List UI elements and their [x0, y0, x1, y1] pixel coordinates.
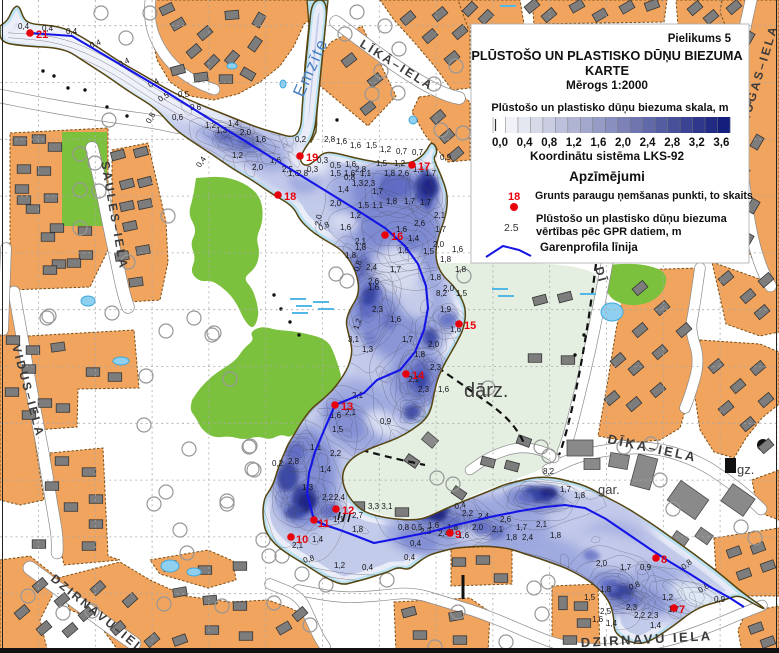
svg-text:1,5: 1,5 — [330, 169, 342, 178]
svg-text:2,4: 2,4 — [366, 263, 378, 272]
svg-text:1,6: 1,6 — [340, 223, 352, 232]
svg-text:13: 13 — [341, 401, 353, 413]
svg-text:2,3: 2,3 — [430, 363, 442, 372]
svg-text:Pielikums 5: Pielikums 5 — [668, 33, 732, 45]
svg-text:Koordinātu sistēma LKS-92: Koordinātu sistēma LKS-92 — [530, 149, 684, 163]
svg-text:19: 19 — [306, 152, 318, 164]
svg-text:2,6: 2,6 — [368, 277, 380, 286]
svg-text:0,6: 0,6 — [172, 113, 184, 122]
svg-text:1,2: 1,2 — [662, 593, 674, 602]
svg-text:17: 17 — [418, 161, 430, 173]
svg-text:2,8: 2,8 — [664, 137, 681, 149]
svg-text:11: 11 — [318, 518, 330, 530]
svg-text:1,8: 1,8 — [440, 255, 452, 264]
svg-text:0,7: 0,7 — [412, 148, 424, 157]
svg-text:0,9: 0,9 — [714, 595, 726, 604]
svg-text:1,8: 1,8 — [600, 585, 612, 594]
svg-text:18: 18 — [284, 191, 296, 203]
svg-text:0,8: 0,8 — [541, 137, 558, 149]
svg-text:0,0: 0,0 — [492, 137, 508, 149]
svg-text:1,6: 1,6 — [390, 315, 402, 324]
svg-text:1,9: 1,9 — [440, 305, 452, 314]
svg-text:1,7: 1,7 — [516, 523, 528, 532]
svg-text:14: 14 — [412, 370, 425, 382]
svg-text:2,0: 2,0 — [472, 523, 484, 532]
svg-text:1,2: 1,2 — [566, 137, 582, 149]
svg-text:2,3: 2,3 — [418, 385, 430, 394]
svg-text:0,3: 0,3 — [317, 156, 329, 165]
svg-text:2,1: 2,1 — [434, 211, 446, 220]
svg-text:1,8: 1,8 — [430, 273, 442, 282]
svg-text:1,6: 1,6 — [255, 135, 267, 144]
svg-text:2,2: 2,2 — [322, 493, 334, 502]
svg-text:3,6: 3,6 — [713, 137, 729, 149]
svg-text:1,8: 1,8 — [345, 251, 357, 260]
svg-text:10: 10 — [296, 534, 308, 546]
svg-text:2,0: 2,0 — [428, 340, 440, 349]
svg-text:1,2: 1,2 — [232, 151, 244, 160]
svg-text:Grunts paraugu ņemšanas punkti: Grunts paraugu ņemšanas punkti, to skait… — [535, 190, 753, 202]
svg-text:2,4: 2,4 — [640, 137, 657, 149]
svg-text:0,2: 0,2 — [295, 135, 307, 144]
svg-text:12: 12 — [342, 505, 354, 517]
svg-text:1,4: 1,4 — [228, 119, 240, 128]
svg-text:1,1: 1,1 — [372, 201, 384, 210]
svg-text:2.5: 2.5 — [504, 222, 519, 234]
svg-text:Mērogs 1:2000: Mērogs 1:2000 — [566, 78, 648, 92]
svg-text:8: 8 — [661, 554, 667, 566]
svg-text:1,6: 1,6 — [344, 169, 356, 178]
svg-text:2,6: 2,6 — [414, 219, 426, 228]
svg-text:0,8 0,5: 0,8 0,5 — [398, 523, 423, 532]
svg-text:1,4: 1,4 — [408, 234, 420, 243]
svg-text:2,0: 2,0 — [240, 128, 252, 137]
svg-text:2,1: 2,1 — [536, 520, 548, 529]
svg-text:1,8: 1,8 — [550, 531, 562, 540]
svg-text:0,7: 0,7 — [396, 147, 408, 156]
svg-text:0,4: 0,4 — [404, 553, 416, 562]
svg-text:1,4: 1,4 — [312, 535, 324, 544]
svg-text:1,4: 1,4 — [320, 465, 332, 474]
svg-text:Plūstošo un plastisko dūņu bie: Plūstošo un plastisko dūņu biezuma — [536, 213, 728, 225]
svg-text:1,8: 1,8 — [506, 533, 518, 542]
svg-text:16: 16 — [391, 231, 403, 243]
svg-text:2,8: 2,8 — [324, 135, 336, 144]
svg-text:3,2: 3,2 — [689, 137, 705, 149]
svg-text:KARTE: KARTE — [585, 63, 630, 78]
svg-text:1,6: 1,6 — [350, 141, 362, 150]
svg-text:1,2: 1,2 — [380, 145, 392, 154]
svg-text:1,7: 1,7 — [560, 485, 572, 494]
svg-text:2,0: 2,0 — [596, 559, 608, 568]
svg-text:Apzīmējumi: Apzīmējumi — [569, 169, 645, 184]
svg-text:1,6: 1,6 — [590, 137, 606, 149]
svg-text:1,5: 1,5 — [584, 593, 596, 602]
svg-text:0,4: 0,4 — [410, 539, 422, 548]
svg-text:1,1: 1,1 — [360, 169, 372, 178]
svg-text:1,7: 1,7 — [404, 197, 416, 206]
svg-text:1,7: 1,7 — [420, 198, 432, 207]
svg-text:2,1: 2,1 — [355, 237, 367, 246]
svg-text:3,3 3,1: 3,3 3,1 — [368, 502, 393, 511]
svg-text:1,6: 1,6 — [592, 615, 604, 624]
svg-text:1,7: 1,7 — [435, 225, 447, 234]
svg-text:1,6: 1,6 — [452, 245, 464, 254]
svg-text:0,4: 0,4 — [18, 22, 30, 31]
svg-text:2,0: 2,0 — [252, 163, 264, 172]
svg-text:0,2: 0,2 — [272, 459, 284, 468]
svg-text:Plūstošo un plastisko dūņu bie: Plūstošo un plastisko dūņu biezuma skala… — [491, 102, 728, 114]
svg-text:2,6: 2,6 — [398, 169, 410, 178]
svg-text:1,4: 1,4 — [650, 621, 662, 630]
svg-text:1,6: 1,6 — [336, 137, 348, 146]
svg-text:18: 18 — [508, 191, 520, 203]
svg-text:2,8: 2,8 — [288, 457, 300, 466]
svg-text:1,2: 1,2 — [334, 561, 346, 570]
svg-text:dārz.: dārz. — [464, 380, 508, 402]
svg-text:0,9: 0,9 — [440, 153, 452, 162]
svg-text:1,4: 1,4 — [606, 619, 618, 628]
svg-text:1,5: 1,5 — [358, 201, 370, 210]
svg-text:8,2: 8,2 — [543, 467, 555, 476]
svg-text:1,8: 1,8 — [384, 169, 396, 178]
svg-text:1,2: 1,2 — [394, 159, 406, 168]
svg-text:2,1: 2,1 — [492, 525, 504, 534]
svg-text:2,0: 2,0 — [615, 137, 631, 149]
svg-text:0,3: 0,3 — [307, 165, 319, 174]
svg-text:1,8: 1,8 — [455, 265, 467, 274]
svg-text:1,5: 1,5 — [332, 425, 344, 434]
svg-text:3,1: 3,1 — [348, 335, 360, 344]
svg-text:0,9: 0,9 — [380, 417, 392, 426]
svg-text:1,8: 1,8 — [352, 525, 364, 534]
svg-text:1,7: 1,7 — [390, 265, 402, 274]
svg-text:2,6: 2,6 — [500, 515, 512, 524]
svg-text:2,0: 2,0 — [433, 240, 445, 249]
svg-text:9: 9 — [455, 529, 461, 541]
svg-text:1,7: 1,7 — [620, 563, 632, 572]
svg-text:1,3: 1,3 — [352, 179, 364, 188]
svg-text:1,3: 1,3 — [362, 345, 374, 354]
svg-text:1,7: 1,7 — [372, 187, 384, 196]
svg-text:1,7: 1,7 — [402, 335, 414, 344]
svg-text:vērtības pēc GPR datiem, m: vērtības pēc GPR datiem, m — [536, 226, 682, 238]
svg-text:1,5: 1,5 — [366, 141, 378, 150]
svg-text:2,4: 2,4 — [334, 493, 346, 502]
svg-text:2,2 2,3: 2,2 2,3 — [634, 611, 659, 620]
svg-text:gz.: gz. — [737, 462, 754, 477]
svg-text:0,4: 0,4 — [362, 563, 374, 572]
svg-text:1,4: 1,4 — [338, 185, 350, 194]
svg-text:1,8: 1,8 — [386, 197, 398, 206]
svg-text:2,4: 2,4 — [522, 533, 534, 542]
svg-text:2,2: 2,2 — [462, 509, 474, 518]
svg-text:8,2: 8,2 — [436, 289, 448, 298]
svg-text:0,4: 0,4 — [517, 137, 534, 149]
svg-text:2,3: 2,3 — [372, 305, 384, 314]
svg-text:7: 7 — [679, 604, 685, 616]
svg-text:1,5: 1,5 — [456, 289, 468, 298]
svg-text:0,9: 0,9 — [640, 563, 652, 572]
svg-text:gar.: gar. — [598, 482, 620, 497]
svg-text:1,8: 1,8 — [574, 491, 586, 500]
svg-text:15: 15 — [464, 320, 476, 332]
svg-text:PLŪSTOŠO UN PLASTISKO DŪŅU BIE: PLŪSTOŠO UN PLASTISKO DŪŅU BIEZUMA — [471, 48, 742, 63]
svg-text:21: 21 — [36, 29, 48, 41]
svg-text:1,5: 1,5 — [376, 159, 388, 168]
svg-text:0,5: 0,5 — [178, 90, 190, 99]
svg-text:Garenprofila līnija: Garenprofila līnija — [540, 242, 638, 254]
svg-text:1,6: 1,6 — [438, 385, 450, 394]
svg-text:2,2: 2,2 — [330, 449, 342, 458]
